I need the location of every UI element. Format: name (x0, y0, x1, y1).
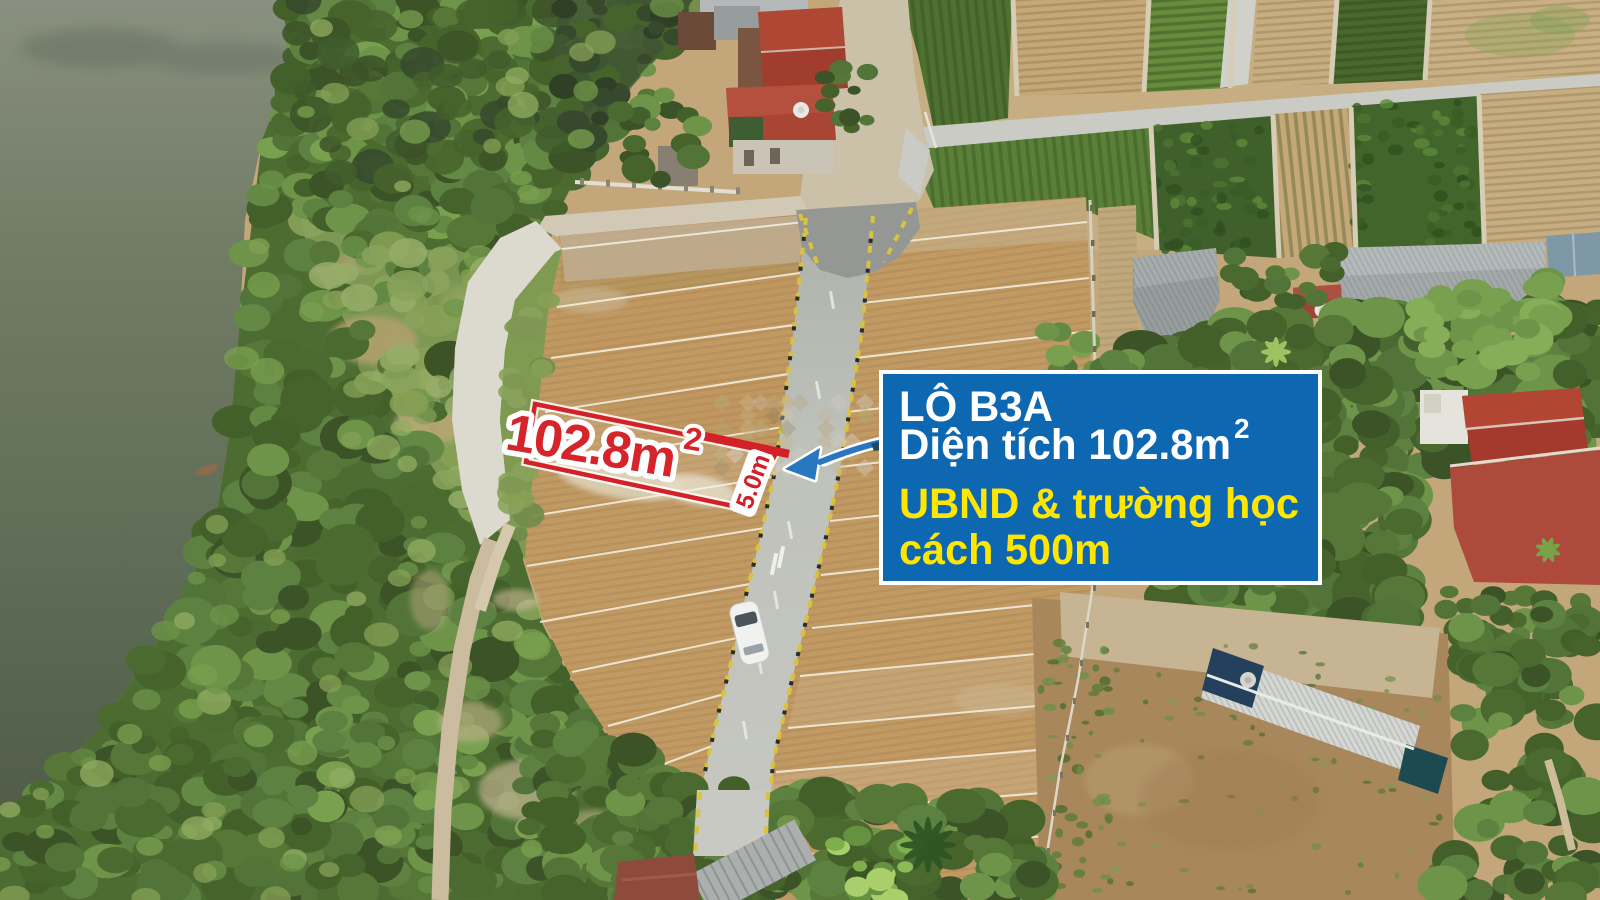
svg-text:UBND & trường học: UBND & trường học (899, 480, 1299, 528)
svg-text:cách 500m: cách 500m (899, 526, 1111, 574)
svg-text:Diện tích 102.8m: Diện tích 102.8m (899, 421, 1231, 469)
svg-text:2: 2 (1234, 413, 1250, 444)
